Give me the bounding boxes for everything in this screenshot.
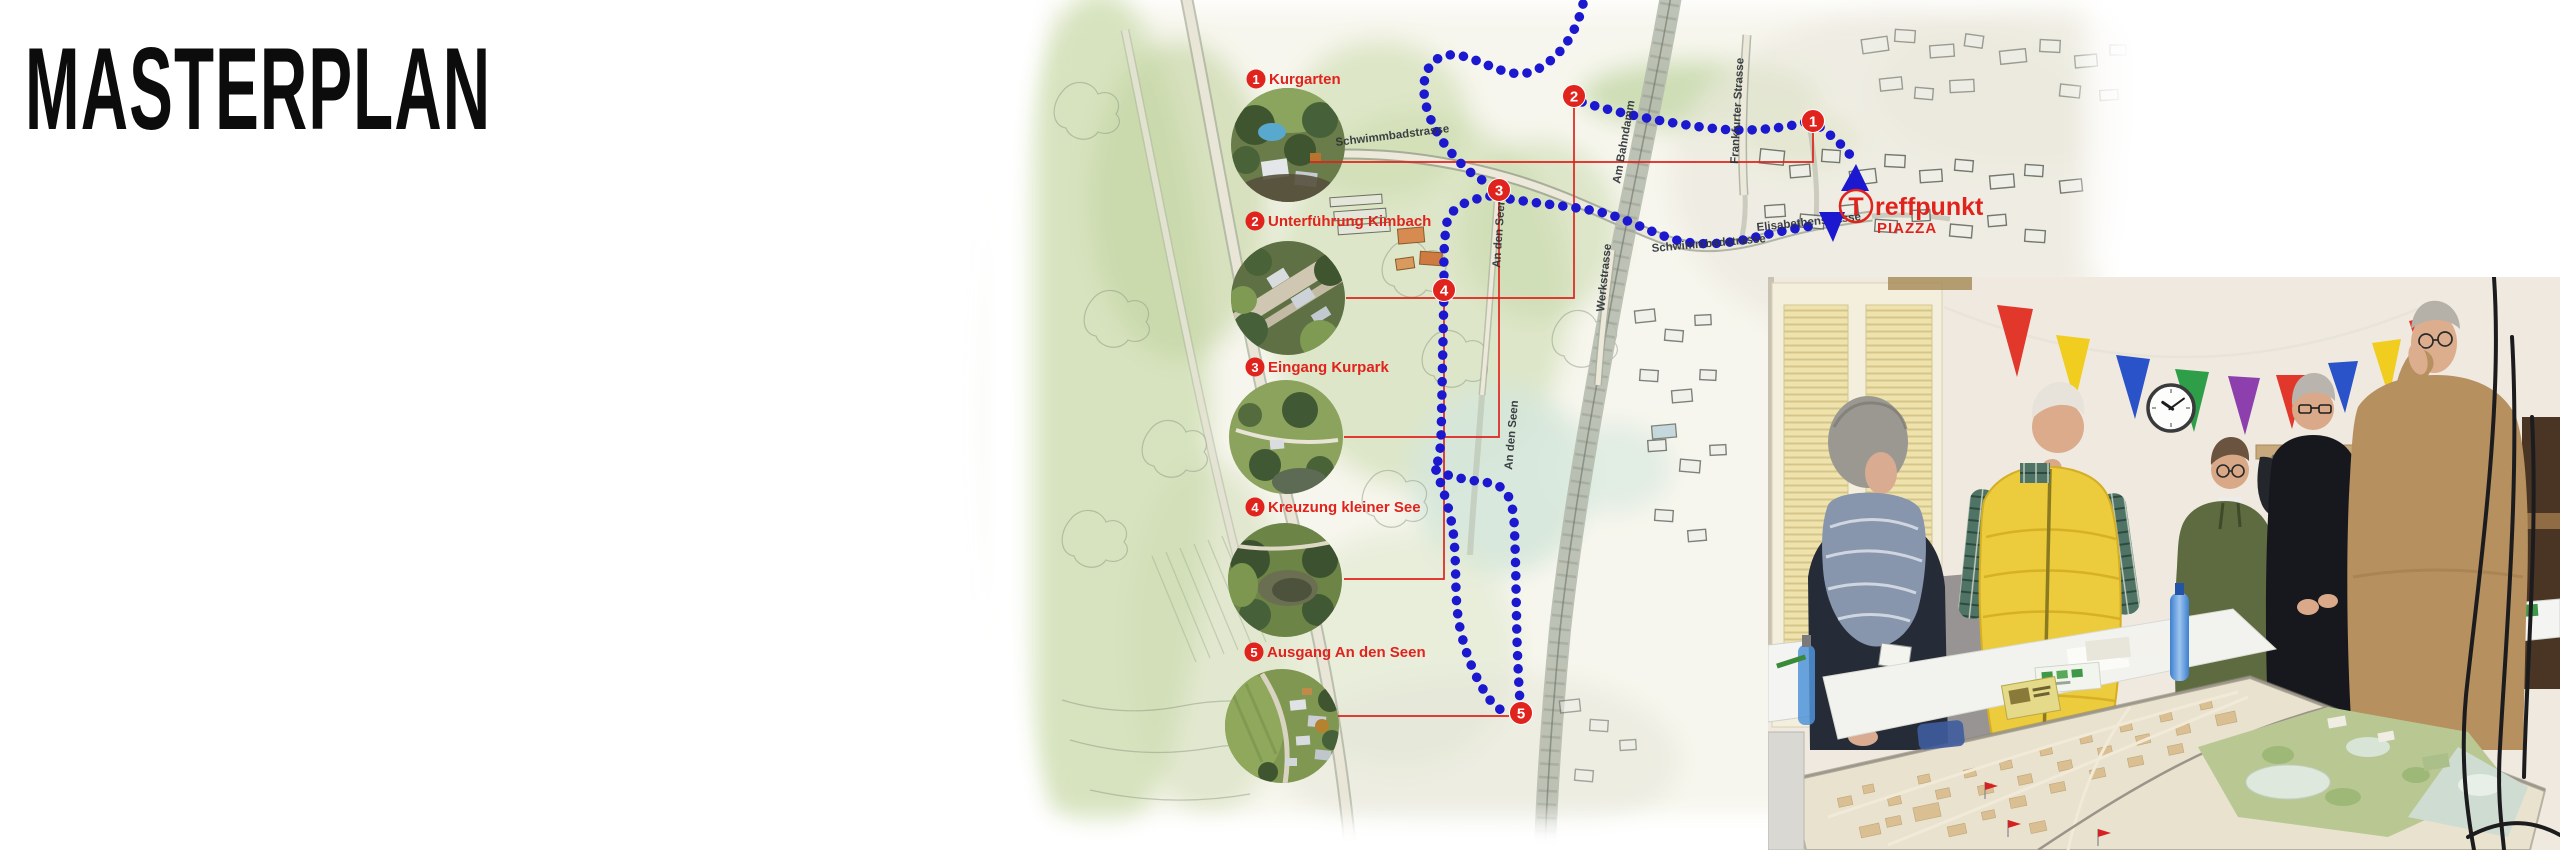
- map-marker-3: 3: [1488, 179, 1511, 202]
- banner: MASTERPLAN: [0, 0, 2560, 850]
- legend-label: Kurgarten: [1269, 71, 1341, 88]
- svg-text:5: 5: [1517, 706, 1525, 723]
- legend-number: 4: [1251, 500, 1259, 515]
- svg-text:4: 4: [1440, 283, 1449, 300]
- raised-arm: [2407, 363, 2421, 439]
- blue-chair: [1917, 720, 1965, 751]
- svg-text:1: 1: [1809, 114, 1817, 131]
- legend-item-5: 5 Ausgang An den Seen: [1245, 643, 1426, 662]
- svg-text:2: 2: [1570, 89, 1578, 106]
- legend-item-2: 2 Unterführung Kimbach: [1246, 212, 1432, 231]
- water-bottle-center: [2170, 583, 2189, 681]
- legend-item-1: 1 Kurgarten: [1247, 70, 1341, 89]
- legend-item-3: 3 Eingang Kurpark: [1246, 358, 1390, 377]
- legend-item-4: 4 Kreuzung kleiner See: [1246, 498, 1421, 517]
- workshop-photo: [1768, 277, 2560, 850]
- meeting-point-initial: T: [1848, 193, 1863, 221]
- map-marker-4: 4: [1433, 279, 1456, 302]
- legend-number: 5: [1250, 645, 1257, 660]
- whiteboard: [1768, 732, 1804, 850]
- legend-label: Ausgang An den Seen: [1267, 644, 1426, 661]
- map-marker-2: 2: [1563, 85, 1586, 108]
- wood-plank: [1888, 277, 1972, 290]
- wall-clock: [2148, 385, 2194, 431]
- map-marker-1: 1: [1802, 110, 1825, 133]
- meeting-point-subtitle: PIAZZA: [1877, 220, 1937, 237]
- legend-number: 3: [1251, 360, 1258, 375]
- legend-label: Unterführung Kimbach: [1268, 213, 1431, 230]
- meeting-point-name: reffpunkt: [1875, 193, 1984, 221]
- legend-number: 2: [1251, 214, 1258, 229]
- map-marker-5: 5: [1510, 702, 1533, 725]
- legend-label: Kreuzung kleiner See: [1268, 499, 1421, 516]
- svg-text:3: 3: [1495, 183, 1503, 200]
- legend-number: 1: [1252, 72, 1259, 87]
- legend-label: Eingang Kurpark: [1268, 359, 1390, 376]
